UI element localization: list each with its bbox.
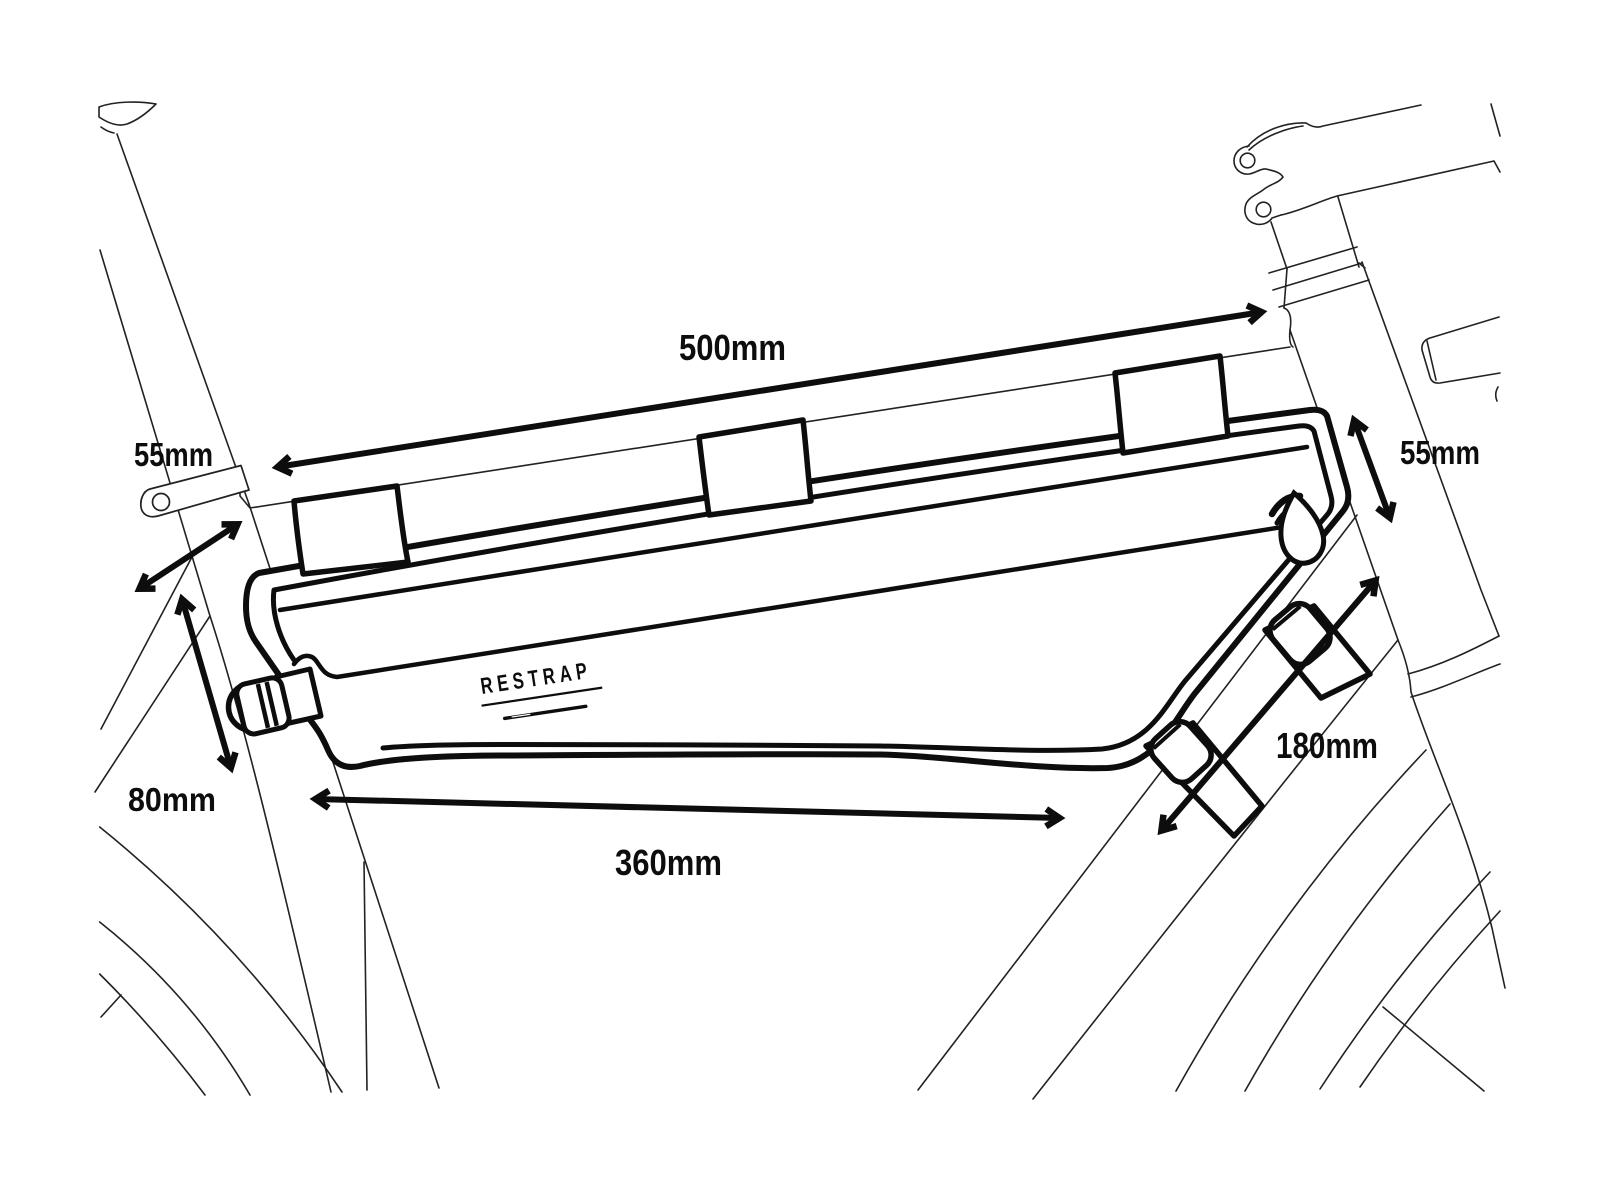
svg-text:80mm: 80mm <box>128 781 216 818</box>
svg-text:55mm: 55mm <box>1400 434 1480 471</box>
svg-text:500mm: 500mm <box>679 327 786 368</box>
svg-text:180mm: 180mm <box>1276 725 1378 766</box>
svg-text:360mm: 360mm <box>615 842 722 883</box>
svg-text:55mm: 55mm <box>134 436 213 473</box>
